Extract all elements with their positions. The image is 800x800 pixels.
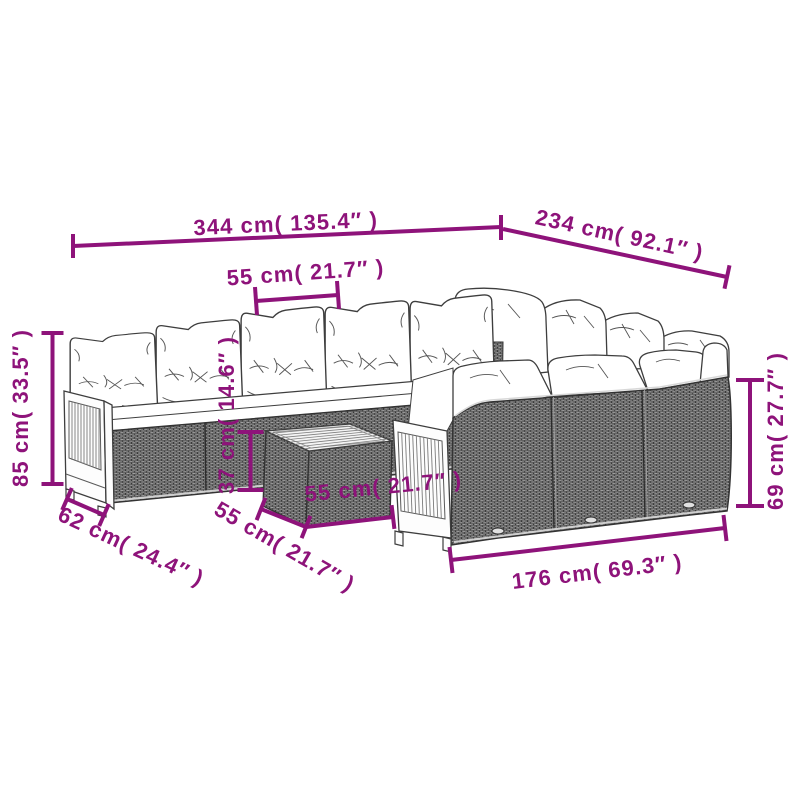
svg-text:37 cm( 14.6″ ): 37 cm( 14.6″ ) [214, 336, 239, 494]
svg-text:85 cm( 33.5″ ): 85 cm( 33.5″ ) [8, 329, 33, 487]
svg-text:69 cm( 27.7″ ): 69 cm( 27.7″ ) [763, 352, 788, 510]
